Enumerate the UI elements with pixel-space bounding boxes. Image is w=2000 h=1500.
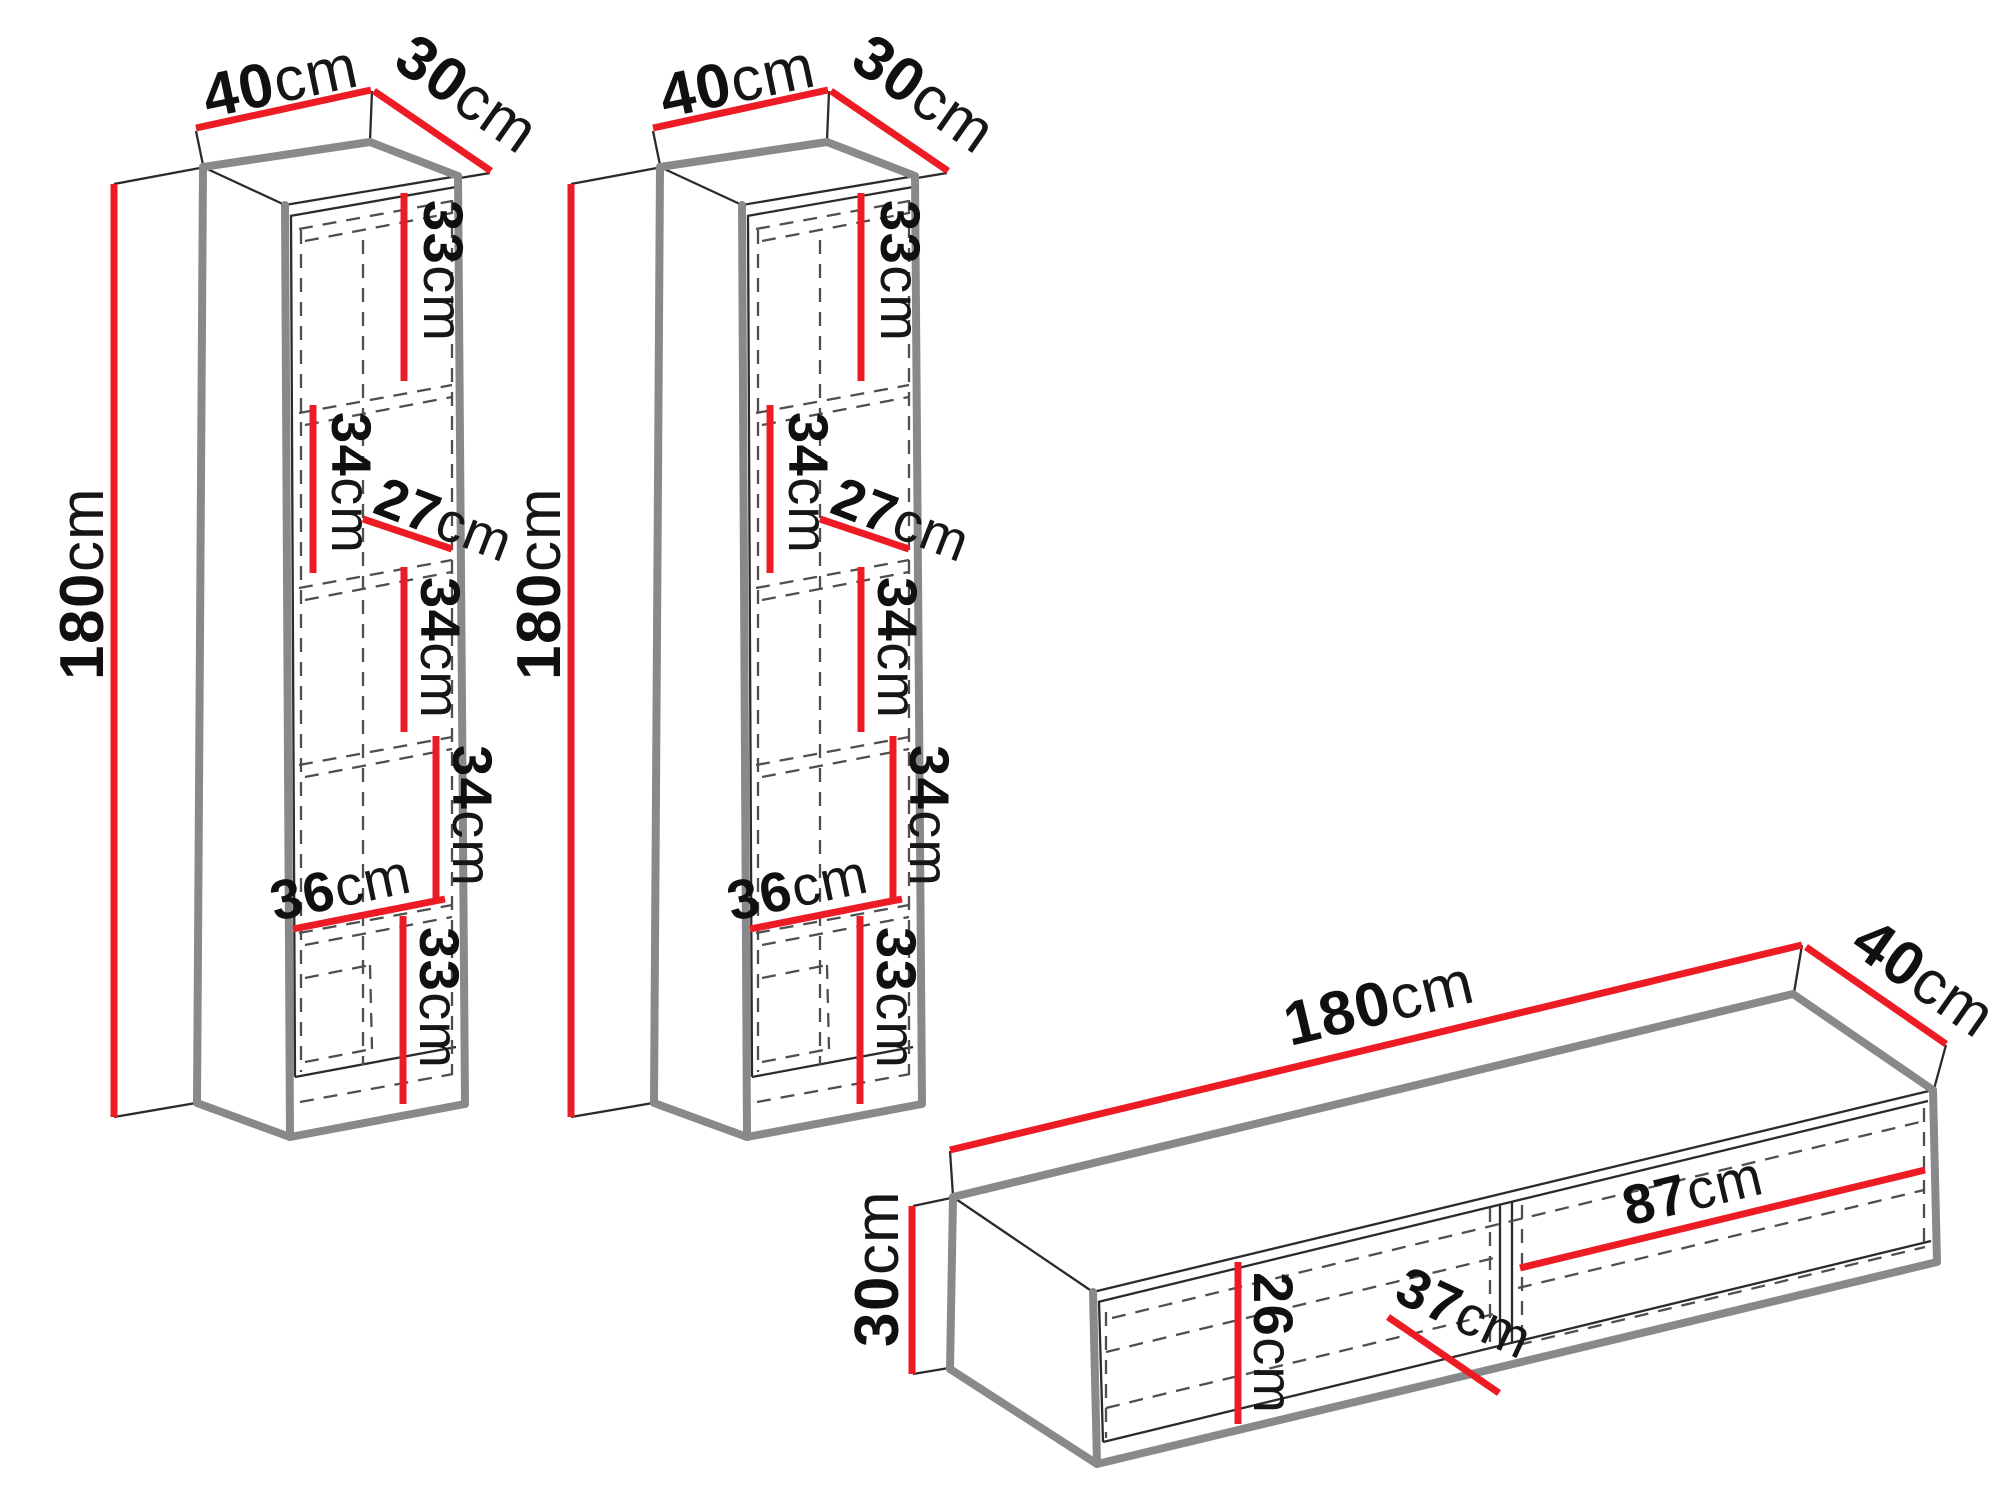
tv-stand-height-label: 30cm <box>843 1190 912 1347</box>
cabinet-width-label: 40cm <box>197 32 365 132</box>
cabinet-height-label: 180cm <box>48 487 117 680</box>
interior-height-label: 26cm <box>1242 1272 1305 1414</box>
diagram-svg: 40cm 30cm 180cm 33cm 34cm 27cm 34cm 34cm… <box>0 0 2000 1500</box>
tall-cabinet-1: 40cm 30cm 180cm 33cm 34cm 27cm 34cm 34cm… <box>48 21 551 1137</box>
compartment-4-label: 34cm <box>441 745 504 887</box>
compartment-2-label: 34cm <box>320 412 383 554</box>
tall-cabinet-2 <box>505 21 1008 1137</box>
compartment-1-label: 33cm <box>412 200 475 342</box>
compartment-3-label: 34cm <box>409 577 472 719</box>
furniture-dimensions-diagram: 40cm 30cm 180cm 33cm 34cm 27cm 34cm 34cm… <box>0 0 2000 1500</box>
tv-stand: 180cm 40cm 30cm 87cm 37cm 26cm <box>843 905 2000 1464</box>
cabinet-depth-label: 30cm <box>383 21 551 167</box>
compartment-5-label: 33cm <box>408 927 471 1069</box>
tv-stand-width-label: 180cm <box>1277 948 1480 1060</box>
cabinet-side-face <box>197 167 290 1137</box>
